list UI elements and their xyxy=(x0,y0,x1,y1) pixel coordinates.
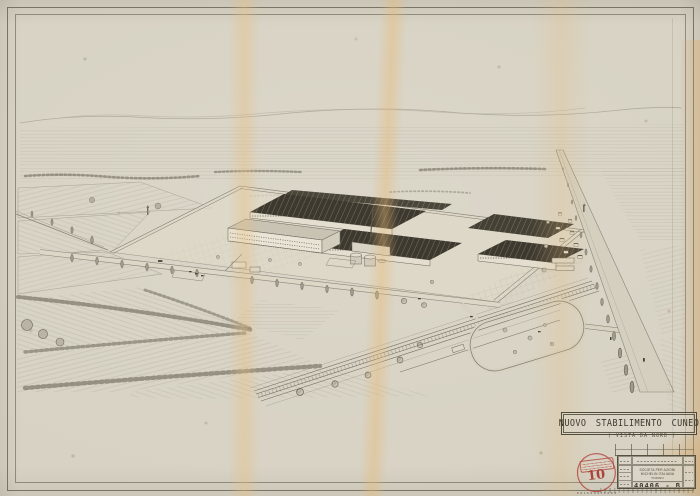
title-block-scale-cells xyxy=(618,465,632,488)
paper-speckles xyxy=(0,0,2,2)
title-block-cell xyxy=(618,456,632,465)
company-name: SOCIETA PER AZIONI MICHELIN ITALIANA TOR… xyxy=(633,466,682,482)
archive-stamp: 10 xyxy=(575,451,621,496)
title-block-company-cell: SOCIETA PER AZIONI MICHELIN ITALIANA TOR… xyxy=(632,465,683,488)
title-block-cell xyxy=(683,456,695,465)
drawing-sheet: NUOVO STABILIMENTO CUNEO ( VISTA DA NORD… xyxy=(0,0,700,496)
title-block-cell xyxy=(683,465,695,488)
title-box: NUOVO STABILIMENTO CUNEO xyxy=(561,412,697,435)
sheet-title: NUOVO STABILIMENTO CUNEO xyxy=(559,418,699,429)
title-block-cell xyxy=(632,456,683,465)
company-city: TORINO xyxy=(633,476,682,480)
title-block-table: SOCIETA PER AZIONI MICHELIN ITALIANA TOR… xyxy=(617,455,696,489)
sheet-subtitle: ( VISTA DA NORD ) xyxy=(598,433,686,441)
stamp-caption xyxy=(577,492,617,494)
title-box-inner-frame: NUOVO STABILIMENTO CUNEO xyxy=(563,414,695,433)
horizon-mountains xyxy=(20,107,682,123)
